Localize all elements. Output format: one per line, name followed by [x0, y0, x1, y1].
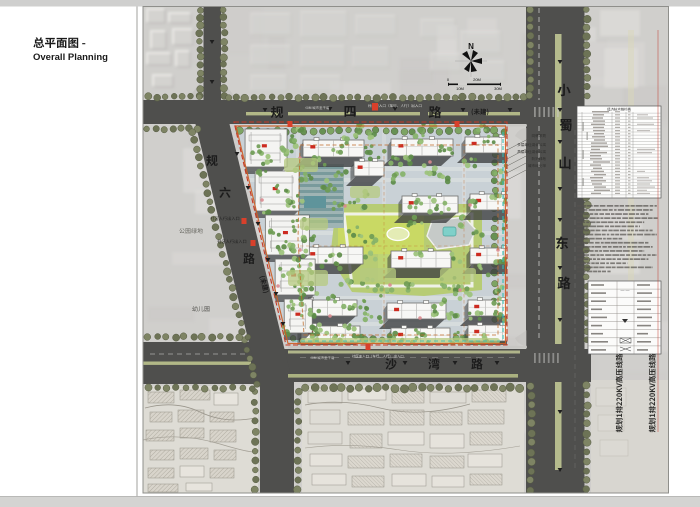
svg-text:10M: 10M: [456, 86, 464, 91]
svg-text:Overall Planning: Overall Planning: [33, 52, 108, 63]
svg-text:20M: 20M: [473, 77, 481, 82]
svg-text:30M: 30M: [494, 86, 502, 91]
svg-text:— —: — —: [620, 287, 629, 292]
